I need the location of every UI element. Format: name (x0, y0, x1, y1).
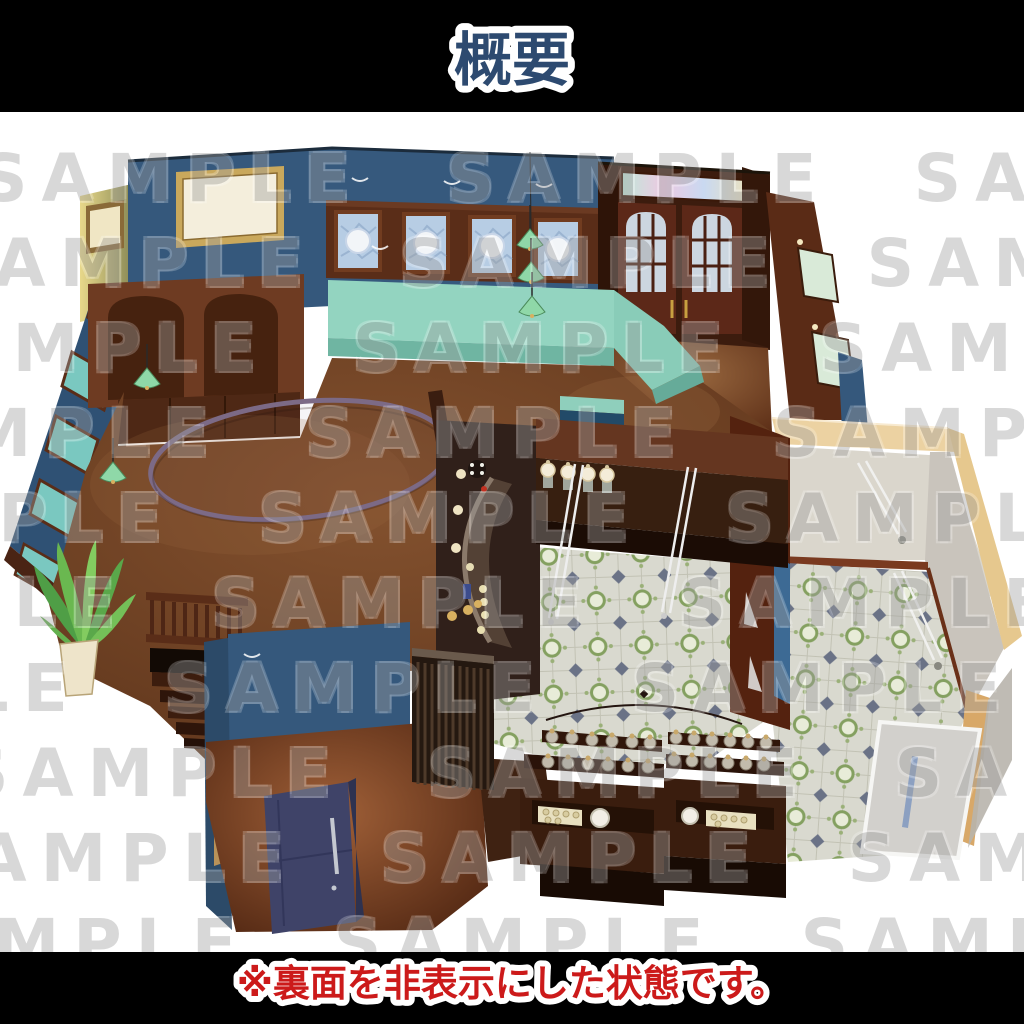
picture-frame (176, 166, 284, 248)
navy-door (264, 778, 364, 934)
ceiling-lamp-top (468, 460, 486, 478)
plant-pot (60, 640, 98, 696)
footer-caption: ※裏面を非表示にした状態です。 (237, 962, 787, 1005)
promo-image: SAMPLE SAMPLE SAMPLE SAMPLESAMPLE SAMPLE… (0, 0, 1024, 1024)
header-bar: 概要 (0, 0, 1024, 112)
stained-glass-windows (326, 200, 600, 284)
white-door (862, 722, 980, 858)
footer-bar: ※裏面を非表示にした状態です。 (0, 952, 1024, 1024)
floorplan-render (0, 0, 1024, 1024)
page-title: 概要 (454, 26, 570, 94)
slat-partition (412, 648, 494, 790)
